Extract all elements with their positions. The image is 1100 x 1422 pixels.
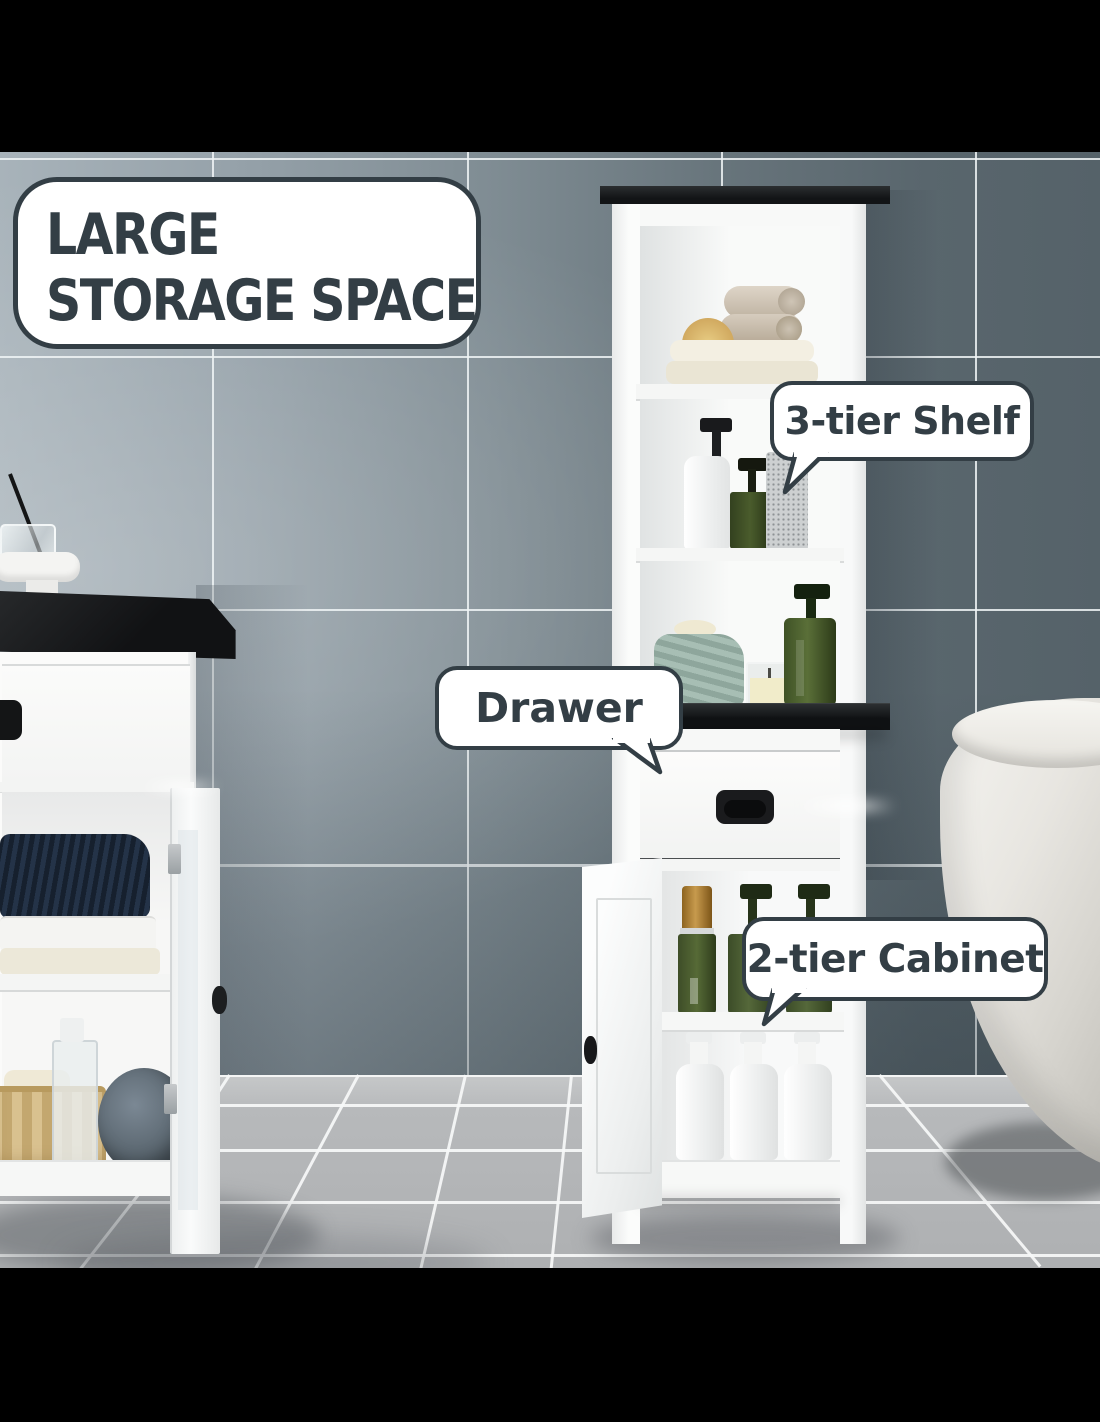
rolled-towel-bottom-swirl <box>776 316 802 342</box>
green-square-bottle-pump-stalk <box>748 469 756 493</box>
white-bottle-pump-stalk <box>712 430 721 458</box>
green-pump-a-head <box>740 884 772 899</box>
left-cabinet-door-knob <box>212 986 227 1014</box>
callout-drawer-label: Drawer <box>475 684 643 732</box>
left-cabinet-drawer-handle <box>0 700 22 740</box>
navy-towel <box>0 834 150 918</box>
spray-bottle-nozzle <box>60 1018 84 1042</box>
folded-towel-upper <box>670 340 814 362</box>
white-towel <box>0 916 156 952</box>
rolled-towel-top-swirl <box>778 288 805 315</box>
big-green-bottle-pump-head <box>794 584 830 599</box>
big-green-bottle-highlight <box>796 640 804 696</box>
headline-callout: LARGE STORAGE SPACE <box>13 177 481 349</box>
left-cabinet-bottom-board <box>0 1160 190 1196</box>
headline-text: LARGE STORAGE SPACE <box>46 202 478 334</box>
callout-cabinet-tail <box>752 988 824 1032</box>
green-pump-b-head <box>798 884 830 899</box>
white-pump-bottle <box>684 456 730 549</box>
diffuser-tray <box>0 552 80 582</box>
left-cabinet-shelf-board <box>0 974 178 992</box>
big-green-bottle-pump-stalk <box>806 598 816 620</box>
white-bottle-1-body <box>676 1064 724 1160</box>
callout-shelf-tail <box>772 452 842 498</box>
gold-cap-bottle-label <box>690 978 698 1004</box>
left-cabinet-door-hinge-bottom <box>164 1084 177 1114</box>
callout-drawer-tail <box>600 738 680 780</box>
sparkle-left <box>140 782 220 792</box>
white-bottle-2-body <box>730 1064 778 1160</box>
tall-cabinet-door-knob <box>584 1036 597 1064</box>
callout-cabinet-label: 2-tier Cabinet <box>747 937 1044 982</box>
gold-cap-bottle-cap <box>682 886 712 930</box>
white-bottle-3-body <box>784 1064 832 1160</box>
left-cabinet-drawer <box>2 664 190 784</box>
big-green-pump-bottle <box>784 618 836 706</box>
diffuser-tray-foot <box>26 580 58 594</box>
cream-towel <box>0 948 160 975</box>
callout-shelf: 3-tier Shelf <box>770 381 1034 461</box>
letterbox-top <box>0 0 1100 152</box>
tall-cabinet-black-top <box>600 186 890 204</box>
product-image: LARGE STORAGE SPACE 3-tier Shelf Drawer … <box>0 0 1100 1422</box>
tall-cabinet-drawer-handle-recess <box>724 800 766 818</box>
tall-cabinet-door-panel <box>596 898 652 1174</box>
left-cabinet-black-top <box>0 588 238 662</box>
left-cabinet-door-glass <box>178 830 198 1210</box>
bottom-rail-shadow <box>640 1196 840 1206</box>
tall-cabinet-bottom-rail <box>640 1160 840 1198</box>
letterbox-bottom <box>0 1268 1100 1422</box>
spray-bottle <box>52 1040 98 1172</box>
green-square-bottle <box>730 492 770 549</box>
callout-shelf-label: 3-tier Shelf <box>785 399 1020 443</box>
left-cabinet-door-hinge-top <box>168 844 181 874</box>
sparkle-right <box>796 800 896 812</box>
tall-cabinet-drawer-bottom-rail <box>640 859 840 871</box>
tall-cabinet-top-rail <box>640 204 840 228</box>
candle-wick <box>768 668 771 678</box>
